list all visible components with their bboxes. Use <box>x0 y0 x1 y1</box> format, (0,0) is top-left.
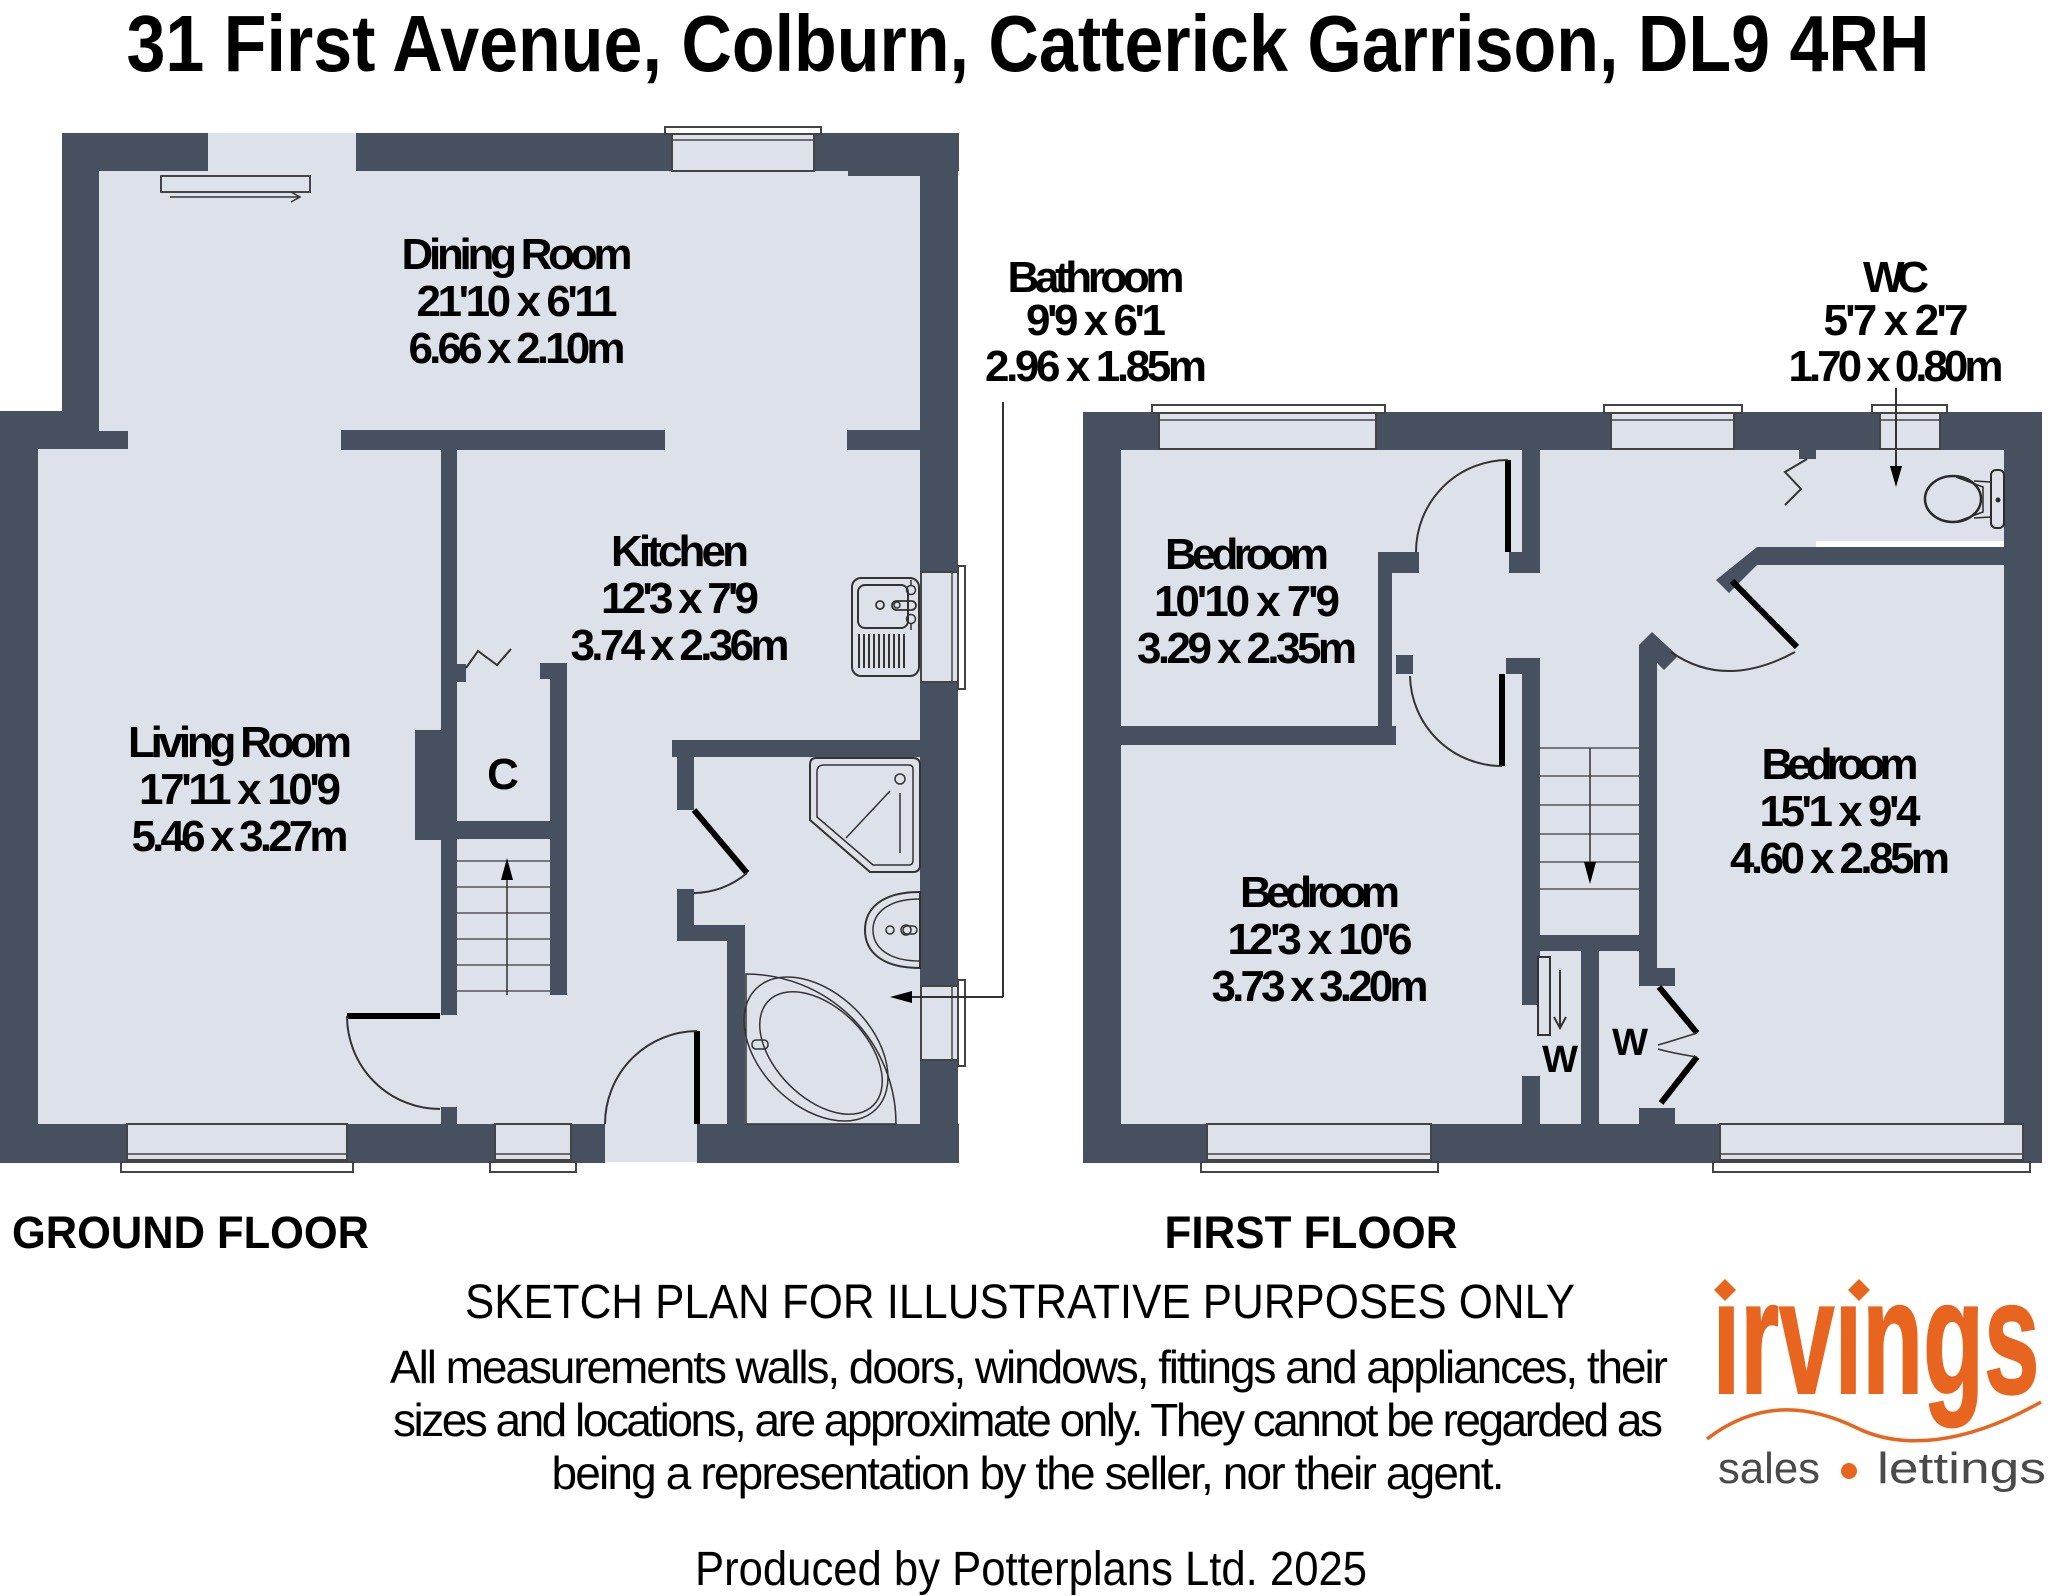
svg-text:All measurements walls, doors,: All measurements walls, doors, windows, … <box>390 1341 1668 1393</box>
svg-text:3.74 x 2.36m: 3.74 x 2.36m <box>571 621 790 670</box>
svg-text:Dining Room: Dining Room <box>402 230 633 279</box>
svg-text:SKETCH PLAN FOR ILLUSTRATIVE P: SKETCH PLAN FOR ILLUSTRATIVE PURPOSES ON… <box>465 1276 1575 1329</box>
svg-text:FIRST FLOOR: FIRST FLOOR <box>1165 1207 1458 1258</box>
svg-text:Bathroom: Bathroom <box>1008 253 1185 302</box>
svg-text:5.46 x 3.27m: 5.46 x 3.27m <box>132 812 349 861</box>
svg-text:12'3 x 7'9: 12'3 x 7'9 <box>601 574 759 623</box>
svg-text:3.29 x 2.35m: 3.29 x 2.35m <box>1137 624 1357 673</box>
svg-text:W: W <box>1542 1039 1578 1081</box>
svg-text:sizes and locations, are appro: sizes and locations, are approximate onl… <box>393 1394 1663 1446</box>
svg-text:4.60 x 2.85m: 4.60 x 2.85m <box>1730 834 1950 883</box>
svg-text:ırvıngs: ırvıngs <box>1713 1247 2040 1428</box>
svg-text:Bedroom: Bedroom <box>1240 868 1400 917</box>
svg-text:9'9 x 6'1: 9'9 x 6'1 <box>1026 296 1166 345</box>
svg-text:2.96 x 1.85m: 2.96 x 1.85m <box>985 342 1207 391</box>
svg-text:21'10 x 6'11: 21'10 x 6'11 <box>417 277 618 326</box>
svg-text:GROUND FLOOR: GROUND FLOOR <box>12 1207 369 1258</box>
svg-text:1.70 x 0.80m: 1.70 x 0.80m <box>1789 342 2004 391</box>
svg-text:Living Room: Living Room <box>128 718 352 767</box>
svg-text:10'10 x 7'9: 10'10 x 7'9 <box>1154 577 1340 626</box>
svg-text:6.66 x 2.10m: 6.66 x 2.10m <box>409 324 626 373</box>
svg-text:C: C <box>487 750 519 799</box>
svg-text:3.73 x 3.20m: 3.73 x 3.20m <box>1212 962 1429 1011</box>
svg-text:Bedroom: Bedroom <box>1762 740 1919 789</box>
svg-text:5'7 x 2'7: 5'7 x 2'7 <box>1824 296 1969 345</box>
svg-text:31 First Avenue, Colburn, Catt: 31 First Avenue, Colburn, Catterick Garr… <box>127 0 1930 88</box>
svg-text:WC: WC <box>1863 253 1929 302</box>
svg-text:Produced by Potterplans Ltd. 2: Produced by Potterplans Ltd. 2025 <box>695 1543 1367 1596</box>
svg-text:lettings: lettings <box>1877 1444 2046 1493</box>
svg-text:15'1 x 9'4: 15'1 x 9'4 <box>1760 787 1922 836</box>
svg-text:being a representation by the: being a representation by the seller, no… <box>552 1447 1505 1499</box>
svg-text:Kitchen: Kitchen <box>611 527 749 576</box>
svg-text:sales: sales <box>1718 1444 1820 1493</box>
svg-text:W: W <box>1612 1022 1648 1064</box>
svg-text:Bedroom: Bedroom <box>1165 530 1329 579</box>
svg-text:17'11 x 10'9: 17'11 x 10'9 <box>139 765 341 814</box>
svg-text:12'3 x 10'6: 12'3 x 10'6 <box>1228 915 1413 964</box>
